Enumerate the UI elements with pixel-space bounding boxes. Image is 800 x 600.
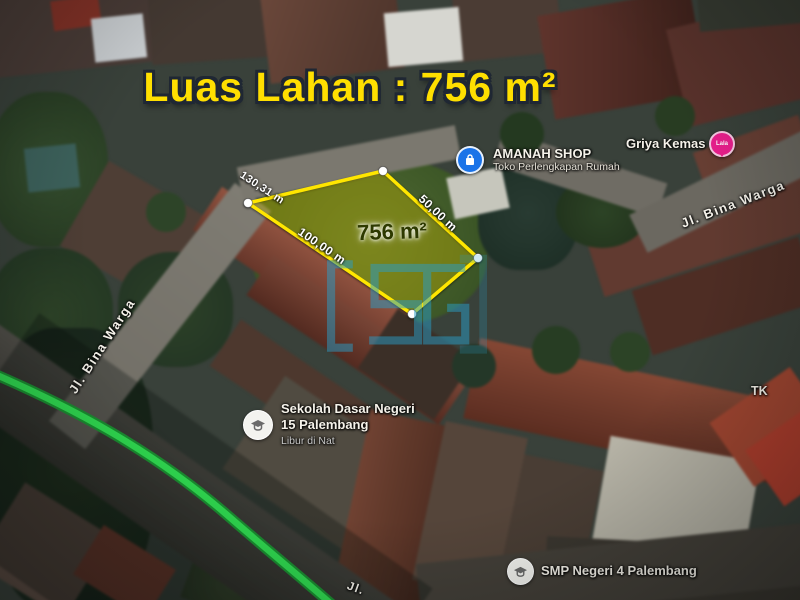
sg-watermark xyxy=(322,252,487,360)
headline-land-area: Luas Lahan : 756 m² xyxy=(143,64,556,111)
plot-area-label: 756 m² xyxy=(357,218,428,246)
sd-school-marker xyxy=(243,410,273,440)
satellite-flyer: 130,31 m 100,00 m 50,00 m 756 m² AMANAH … xyxy=(0,0,800,600)
poi-shop-subtitle: Toko Perlengkapan Rumah xyxy=(493,161,620,173)
watermark-letter-s xyxy=(369,268,423,341)
poi-tk-label: TK xyxy=(751,384,768,398)
shopping-bag-icon xyxy=(463,153,477,167)
poi-smp-school-name: SMP Negeri 4 Palembang xyxy=(541,563,697,578)
poi-sd-school-status: Libur di Nat xyxy=(281,435,335,447)
vertex-dot xyxy=(244,199,253,208)
pink-pin-marker: Lala xyxy=(709,131,735,157)
watermark-letter-g xyxy=(427,268,465,341)
pin-text: Lala xyxy=(716,141,728,147)
poi-sd-school-line1: Sekolah Dasar Negeri xyxy=(281,401,415,416)
shop-marker xyxy=(456,146,484,174)
poi-sd-school-line2: 15 Palembang xyxy=(281,417,368,432)
school-icon xyxy=(250,418,266,432)
watermark-bracket-left xyxy=(331,264,353,347)
poi-griya-kemas-name: Griya Kemas xyxy=(626,136,706,151)
poi-shop-name: AMANAH SHOP xyxy=(493,146,591,161)
school-icon xyxy=(513,565,528,578)
smp-school-marker xyxy=(507,558,534,585)
vertex-dot xyxy=(379,167,388,176)
